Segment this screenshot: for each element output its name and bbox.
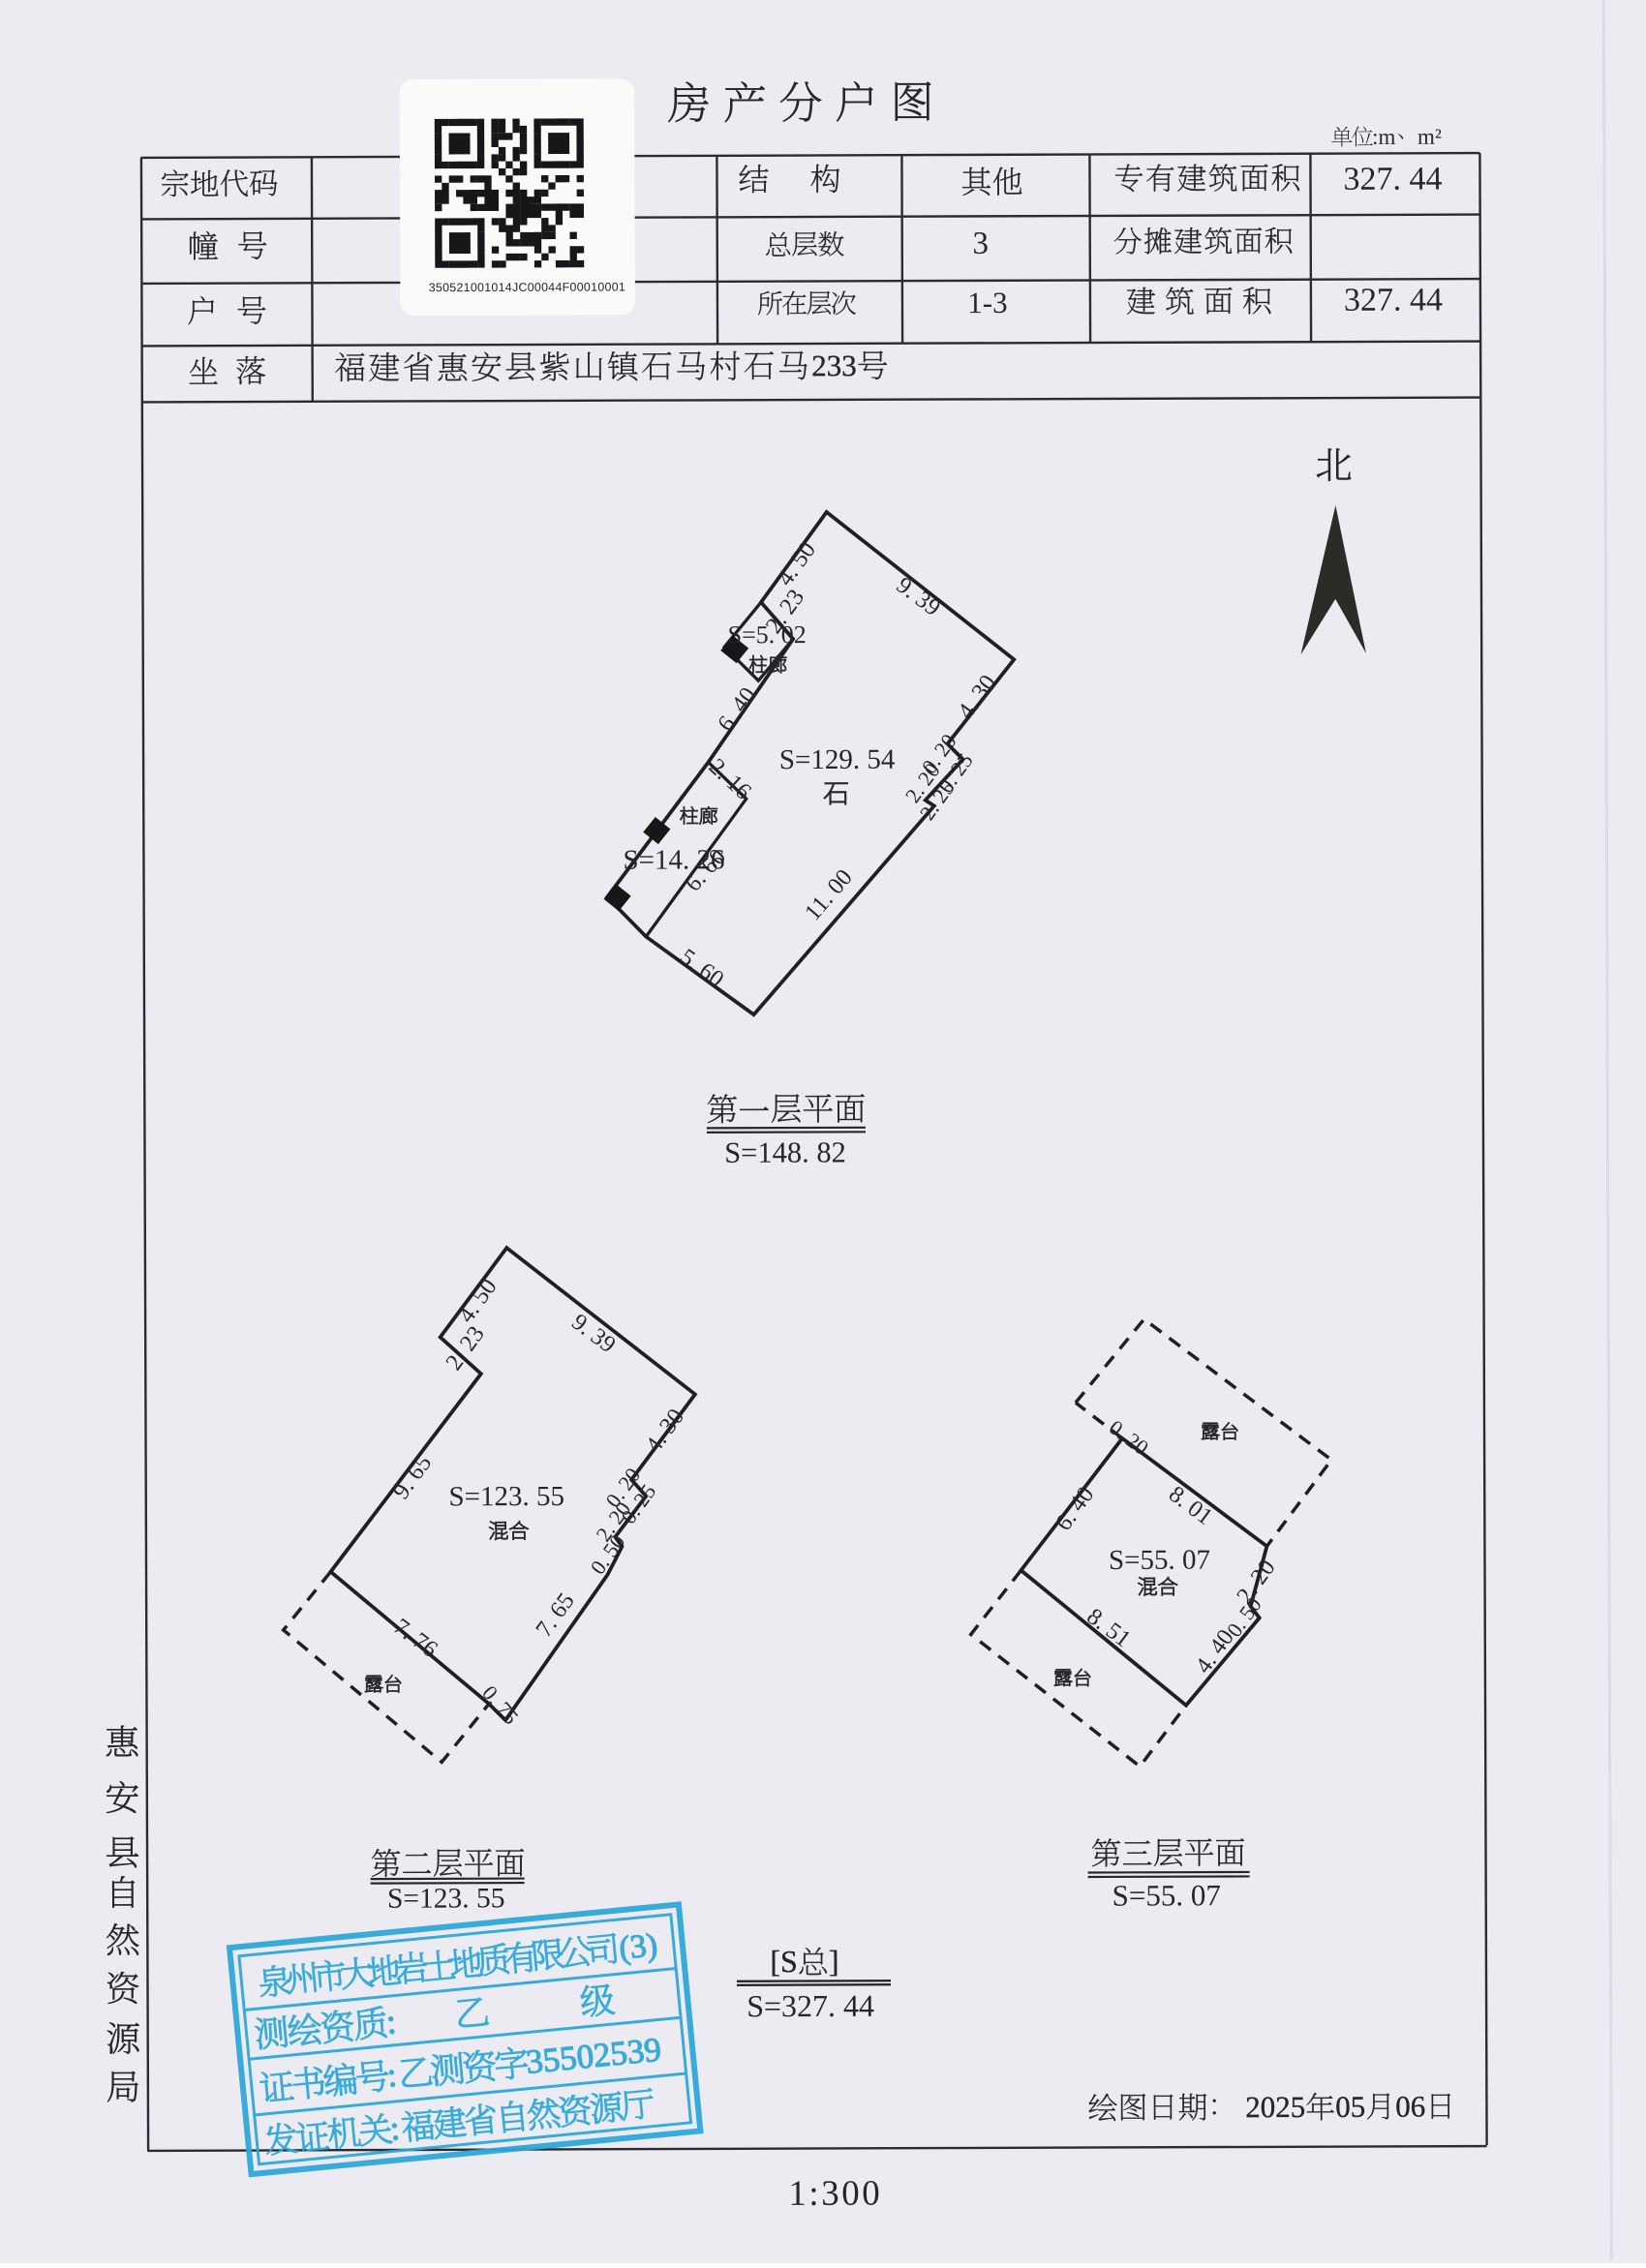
svg-text:S=327. 44: S=327. 44 (747, 1988, 874, 2023)
svg-text:06: 06 (1395, 2090, 1425, 2124)
svg-text:1:300: 1:300 (788, 2174, 882, 2214)
svg-text:m²: m² (1417, 125, 1442, 149)
svg-text:S=55. 07: S=55. 07 (1113, 1878, 1221, 1912)
svg-text:327. 44: 327. 44 (1344, 282, 1443, 318)
svg-text:3: 3 (972, 227, 989, 261)
svg-text:233: 233 (811, 348, 857, 382)
svg-text:350521001014JC00044F00010001: 350521001014JC00044F00010001 (429, 280, 625, 294)
svg-text:S=123. 55: S=123. 55 (448, 1481, 564, 1512)
svg-text:2025: 2025 (1237, 2090, 1305, 2124)
svg-text:]: ] (829, 1944, 839, 1979)
svg-text:S=148. 82: S=148. 82 (724, 1135, 846, 1168)
svg-text:[S: [S (770, 1944, 798, 1979)
svg-text:S=55. 07: S=55. 07 (1109, 1545, 1210, 1576)
svg-text:(3): (3) (618, 1927, 659, 1967)
svg-text:327. 44: 327. 44 (1343, 161, 1442, 197)
svg-text:05: 05 (1335, 2090, 1365, 2124)
svg-text:S=123. 55: S=123. 55 (387, 1883, 505, 1914)
svg-text::m: :m (1372, 125, 1395, 149)
svg-text:1-3: 1-3 (967, 286, 1007, 319)
svg-text:S=129. 54: S=129. 54 (779, 744, 896, 775)
